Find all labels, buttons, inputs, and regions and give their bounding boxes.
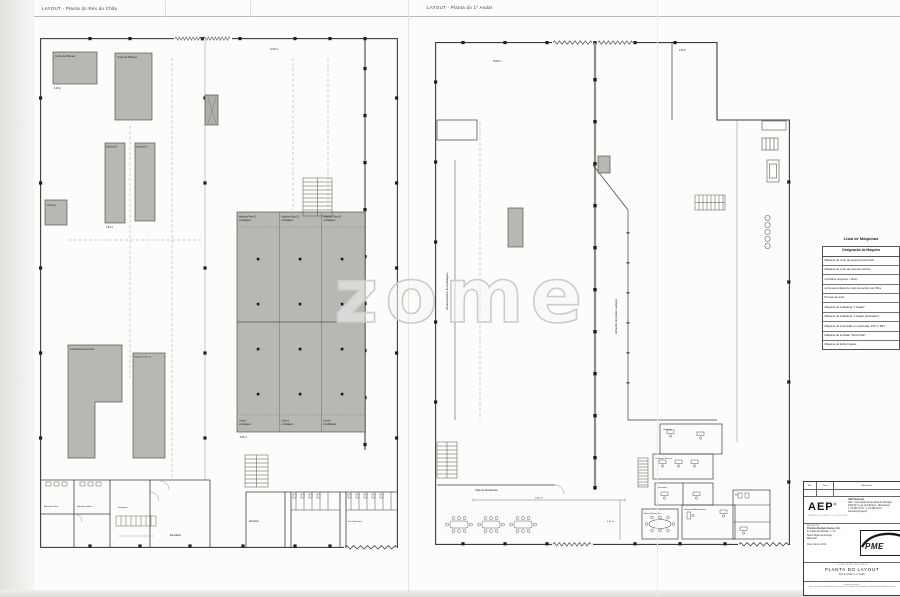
- block-label: Linha 3: [324, 421, 332, 423]
- fold-crease: [250, 1, 251, 17]
- machine-list-row: Máquina de corte de espuma horizontal: [823, 257, 899, 266]
- block-label: Carrossel 2: [136, 146, 148, 149]
- machine-block-carrossel-2: [135, 143, 155, 221]
- block-label: Corte de Placas: [55, 54, 76, 58]
- machine-block-corte-blocos: [115, 53, 152, 120]
- machine-list-row: Prensa de corte: [823, 294, 899, 303]
- dim-label: 4,00 m: [54, 88, 61, 90]
- title-block: Rev. Data Alterações AEP® CÂMARA DE COMÉ…: [803, 481, 900, 596]
- aep-contact: AEP Empresas AEP - Associação Empresaria…: [848, 499, 898, 514]
- machine-list-row: Linha automática de corte de tecido com …: [823, 285, 899, 294]
- block-label: Máquina Flow 01: [239, 217, 257, 219]
- outer-wall: [436, 43, 790, 545]
- machine-block-linha-manual: [68, 345, 122, 458]
- aep-logo: AEP®: [808, 501, 838, 513]
- block-label: Linha 2: [282, 421, 290, 423]
- room-label: Refeitório: [249, 520, 260, 523]
- rev-desc-label: Alterações: [834, 482, 900, 489]
- canteen: [437, 485, 625, 540]
- sheet-rule: [34, 16, 900, 17]
- left-plan-title: LAYOUT - Planta do Rés do Chão: [42, 6, 117, 11]
- rev-date-label: Data: [817, 482, 834, 489]
- block-label: embalagem: [239, 424, 251, 426]
- block-label: Corte de Blocos: [117, 55, 138, 59]
- fixtures: [46, 482, 383, 536]
- block-label: Máquina Flow 03: [324, 217, 342, 219]
- dim-label: 6,35 m: [240, 437, 247, 439]
- pme-swoosh-icon: [861, 531, 900, 555]
- room-label: Balneário Masc.: [77, 505, 93, 508]
- block-label: Linha 1: [239, 421, 247, 423]
- dim-label: 4,50 m: [607, 521, 614, 523]
- left-floor-plan: Corte de Placas Corte de Blocos Carrosse…: [40, 38, 398, 548]
- machine-list-header: Designação de Máquina: [823, 247, 899, 257]
- machine-list-row: Máquina de soldadura "L Sealer automátic…: [823, 313, 899, 322]
- aep-tagline: CÂMARA DE COMÉRCIO E INDÚSTRIA: [808, 515, 847, 517]
- block-label: embalagem: [239, 220, 251, 222]
- registered-mark-icon: ®: [834, 501, 838, 506]
- dim-label: 38,50 m: [493, 61, 501, 63]
- room-label: Gabinete: [663, 428, 673, 431]
- office-furniture: [645, 430, 749, 534]
- machine-list-row: Máquina de embalar "Flow Pack": [823, 332, 899, 341]
- bottom-rooms: [40, 480, 397, 548]
- block-label: embalagem: [324, 220, 336, 222]
- dim-label: 2,80 m: [106, 227, 113, 229]
- scan-edge-left: [0, 0, 34, 597]
- fold-crease: [165, 1, 166, 17]
- corridor-equipment: [762, 121, 786, 249]
- room-label: Armazenamento de embalagens: [445, 272, 449, 310]
- room-label: Vestiários: [118, 506, 128, 509]
- scan-edge-bottom: [0, 590, 900, 597]
- fine-print-line: Cotas em metros, salvo indicação em cont…: [806, 586, 898, 589]
- dim-label: 14,00 m: [535, 498, 543, 500]
- rev-label: Rev.: [804, 482, 817, 489]
- office-walls: [642, 424, 770, 539]
- localizacao-label: LOCALIZAÇÃO EM PLANTA: [804, 564, 900, 566]
- machine-list-title: Lista de Máquinas: [822, 236, 900, 241]
- room-label: WC: [735, 495, 739, 497]
- right-floor-plan: Armazenamento de embalagens Armazém de p…: [435, 42, 790, 545]
- elevator: [205, 95, 218, 125]
- drawing-subtitle: Rés do Chão e 1.º Andar: [804, 573, 900, 576]
- canteen-tables: [446, 517, 537, 533]
- drawing-title-section: LOCALIZAÇÃO EM PLANTA PLANTA DO LAYOUT R…: [804, 562, 900, 582]
- machine-list-table: Designação de Máquina Máquina de corte d…: [822, 246, 900, 350]
- fine-print: Este desenho é propriedade da AEP. Qualq…: [806, 581, 898, 589]
- aep-section: AEP® CÂMARA DE COMÉRCIO E INDÚSTRIA AEP …: [804, 496, 900, 524]
- room-label: Balneário Fem.: [44, 505, 59, 508]
- fold-crease: [657, 0, 658, 597]
- machine-list: Lista de Máquinas Designação de Máquina …: [822, 236, 900, 350]
- block-label: Carrossel 1: [106, 146, 118, 149]
- machine-list-row: Máquina de soldadura "L Sealer": [823, 303, 899, 312]
- machine-block-flow-xl: [133, 353, 165, 458]
- room-label: Inst. Sanitárias: [348, 520, 362, 523]
- dim-label: 1,80 m: [679, 50, 686, 52]
- room-label: Armazém de produto acabado: [614, 299, 618, 334]
- scanned-sheet: LAYOUT - Planta do Rés do Chão LAYOUT - …: [0, 0, 900, 597]
- right-plan-title: LAYOUT - Planta do 1º Andar: [427, 5, 493, 10]
- machine-block-carrossel-1: [105, 143, 125, 223]
- fold-crease: [408, 0, 409, 597]
- date-field: Data: Janeiro 2021: [807, 544, 857, 547]
- interior-walls: [437, 43, 737, 442]
- block-label: embalagem: [282, 220, 294, 222]
- pme-logo: PME: [860, 530, 900, 556]
- machine-list-row: Máquina de corte de espuma vertical: [823, 266, 899, 275]
- dim-label: 12,50 m: [270, 49, 278, 51]
- room-label: Gabinete Administrativo: [684, 508, 707, 511]
- block-label: Máquina Flow XL: [135, 357, 153, 359]
- block-label: Máquina Flow 02: [282, 217, 300, 219]
- block-label: Linha Manual de Corte: [70, 348, 95, 351]
- block-label: Flexibilidade: [324, 424, 337, 426]
- drawing-title: PLANTA DO LAYOUT: [804, 567, 900, 572]
- requerente-address: Mancelos: [807, 538, 857, 541]
- room-label: Expedição: [170, 534, 181, 537]
- aep-line: www.aeportugal.pt: [848, 511, 898, 514]
- machine-list-row: Colchões (espuma + fibra): [823, 275, 899, 284]
- machine-list-row: Máquina de fechar caixas: [823, 341, 899, 349]
- requerente-section: Requerente: Positivo Absoluto Gomes, S.A…: [804, 523, 900, 563]
- block-label: embalagem: [282, 424, 294, 426]
- block-label: Prensa: [48, 204, 57, 207]
- room-label: Secretaria: [657, 486, 668, 489]
- room-label: Sala de Refeições: [475, 488, 498, 492]
- machine-list-row: Máquina de impressão em películas, PVC e…: [823, 322, 899, 331]
- requerente-info: Requerente: Positivo Absoluto Gomes, S.A…: [807, 525, 857, 547]
- room-label: Sala de Reuniões: [644, 512, 662, 515]
